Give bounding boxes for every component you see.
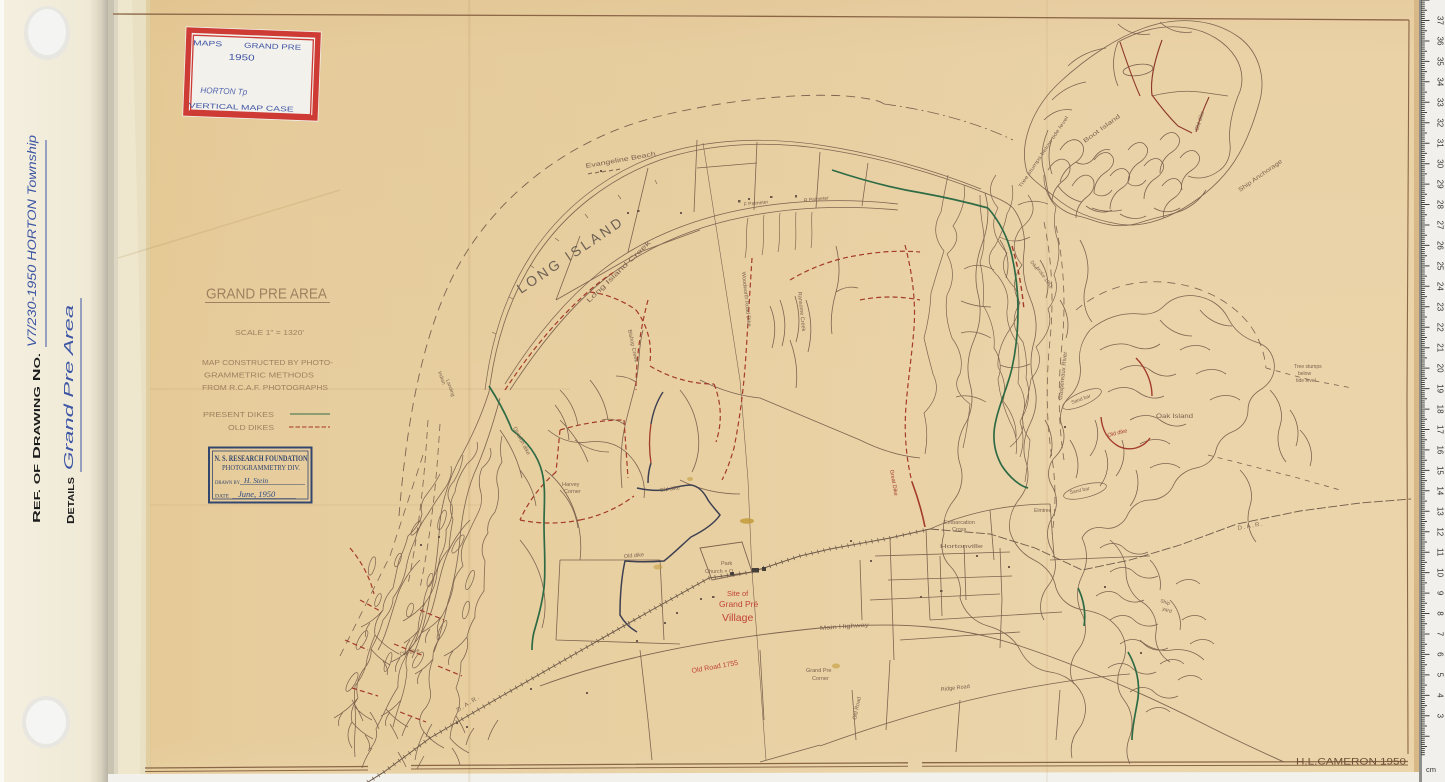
svg-text:V7/230-1950 HORTON Township: V7/230-1950 HORTON Township <box>25 135 39 347</box>
svg-text:32: 32 <box>1436 118 1445 127</box>
svg-text:Grand Pré: Grand Pré <box>719 599 758 609</box>
svg-text:PRESENT DIKES: PRESENT DIKES <box>203 410 274 419</box>
svg-text:3: 3 <box>1436 714 1445 719</box>
svg-text:7: 7 <box>1436 632 1445 637</box>
svg-text:PHOTOGRAMMETRY DIV.: PHOTOGRAMMETRY DIV. <box>222 464 300 472</box>
svg-text:GRAND PRE AREA: GRAND PRE AREA <box>206 286 327 303</box>
svg-text:Site of: Site of <box>727 589 749 598</box>
svg-text:HORTON Tp: HORTON Tp <box>200 85 248 97</box>
svg-text:Hortonville: Hortonville <box>940 544 983 550</box>
svg-text:H.L.CAMERON 1950: H.L.CAMERON 1950 <box>1296 757 1406 768</box>
svg-text:8: 8 <box>1436 611 1445 616</box>
svg-text:MAP CONSTRUCTED BY PHOTO-: MAP CONSTRUCTED BY PHOTO- <box>202 358 334 367</box>
svg-text:cm: cm <box>1426 765 1436 774</box>
svg-text:25: 25 <box>1436 261 1445 270</box>
svg-text:20: 20 <box>1436 364 1445 373</box>
svg-text:13: 13 <box>1436 507 1445 516</box>
svg-text:9: 9 <box>1436 591 1445 596</box>
svg-text:Cross: Cross <box>952 527 967 533</box>
svg-text:Elmtree: Elmtree <box>1034 508 1051 514</box>
svg-text:H. Stein: H. Stein <box>243 476 268 485</box>
svg-text:REF. OF DRAWING NO.: REF. OF DRAWING NO. <box>32 353 43 523</box>
svg-text:27: 27 <box>1436 221 1445 230</box>
svg-text:30: 30 <box>1436 159 1445 168</box>
svg-text:below: below <box>1298 371 1311 377</box>
svg-text:Corner: Corner <box>564 489 581 495</box>
svg-text:Corner: Corner <box>812 676 829 682</box>
svg-text:OLD DIKES: OLD DIKES <box>228 423 274 432</box>
svg-text:Village: Village <box>722 612 753 624</box>
svg-text:Church × O: Church × O <box>705 569 734 575</box>
svg-text:16: 16 <box>1436 445 1445 454</box>
svg-text:6: 6 <box>1436 652 1445 657</box>
svg-text:DETAILS: DETAILS <box>66 476 77 524</box>
svg-text:22: 22 <box>1436 323 1445 332</box>
svg-text:GRAMMETRIC METHODS: GRAMMETRIC METHODS <box>204 371 314 380</box>
svg-text:Grand Pre Area: Grand Pre Area <box>61 305 76 470</box>
svg-text:tide level: tide level <box>1296 378 1316 384</box>
svg-text:5: 5 <box>1436 673 1445 678</box>
svg-text:4: 4 <box>1436 693 1445 698</box>
svg-text:Embarcation: Embarcation <box>944 520 975 526</box>
svg-text:37: 37 <box>1436 16 1445 25</box>
svg-text:DATE: DATE <box>215 494 230 500</box>
svg-text:24: 24 <box>1436 282 1445 291</box>
svg-text:June, 1950: June, 1950 <box>238 489 276 499</box>
svg-text:29: 29 <box>1436 180 1445 189</box>
svg-text:Oak Island: Oak Island <box>1156 414 1193 420</box>
svg-text:N. S. RESEARCH FOUNDATION: N. S. RESEARCH FOUNDATION <box>215 454 308 463</box>
svg-text:26: 26 <box>1436 241 1445 250</box>
svg-text:34: 34 <box>1436 77 1445 86</box>
svg-text:31: 31 <box>1436 139 1445 148</box>
svg-text:21: 21 <box>1436 343 1445 352</box>
svg-text:35: 35 <box>1436 57 1445 66</box>
svg-text:SCALE 1" = 1320': SCALE 1" = 1320' <box>235 328 305 337</box>
svg-text:12: 12 <box>1436 527 1445 536</box>
svg-text:18: 18 <box>1436 405 1445 414</box>
svg-text:Park: Park <box>721 561 733 567</box>
svg-text:MAPS: MAPS <box>193 38 223 48</box>
svg-text:Harvey: Harvey <box>562 482 580 488</box>
svg-text:FROM R.C.A.F. PHOTOGRAPHS: FROM R.C.A.F. PHOTOGRAPHS <box>202 383 328 392</box>
svg-text:17: 17 <box>1436 425 1445 434</box>
svg-text:11: 11 <box>1436 548 1445 557</box>
svg-text:15: 15 <box>1436 466 1445 475</box>
svg-text:23: 23 <box>1436 302 1445 311</box>
svg-text:33: 33 <box>1436 98 1445 107</box>
svg-text:19: 19 <box>1436 384 1445 393</box>
svg-text:Tree stumps: Tree stumps <box>1294 364 1322 370</box>
svg-text:DRAWN BY: DRAWN BY <box>215 480 240 486</box>
svg-text:28: 28 <box>1436 200 1445 209</box>
svg-text:1950: 1950 <box>228 52 255 63</box>
svg-text:36: 36 <box>1436 37 1445 46</box>
svg-text:10: 10 <box>1436 568 1445 577</box>
svg-text:Grand Pre: Grand Pre <box>806 668 831 674</box>
svg-text:14: 14 <box>1436 486 1445 495</box>
